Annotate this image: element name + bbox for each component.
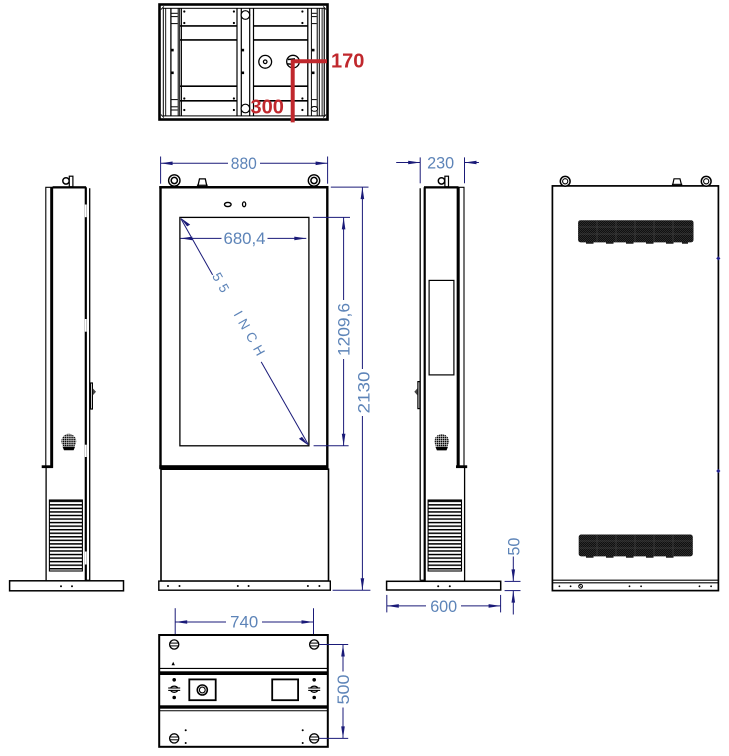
svg-text:170: 170: [331, 51, 364, 73]
svg-text:740: 740: [230, 613, 258, 631]
svg-text:600: 600: [430, 598, 457, 616]
svg-text:880: 880: [231, 155, 257, 173]
svg-text:50: 50: [505, 538, 523, 556]
svg-text:500: 500: [335, 675, 353, 705]
svg-text:230: 230: [427, 155, 454, 173]
svg-text:2130: 2130: [356, 372, 374, 414]
svg-text:300: 300: [251, 97, 284, 119]
svg-text:680,4: 680,4: [224, 230, 266, 248]
svg-text:1209,6: 1209,6: [335, 303, 353, 356]
